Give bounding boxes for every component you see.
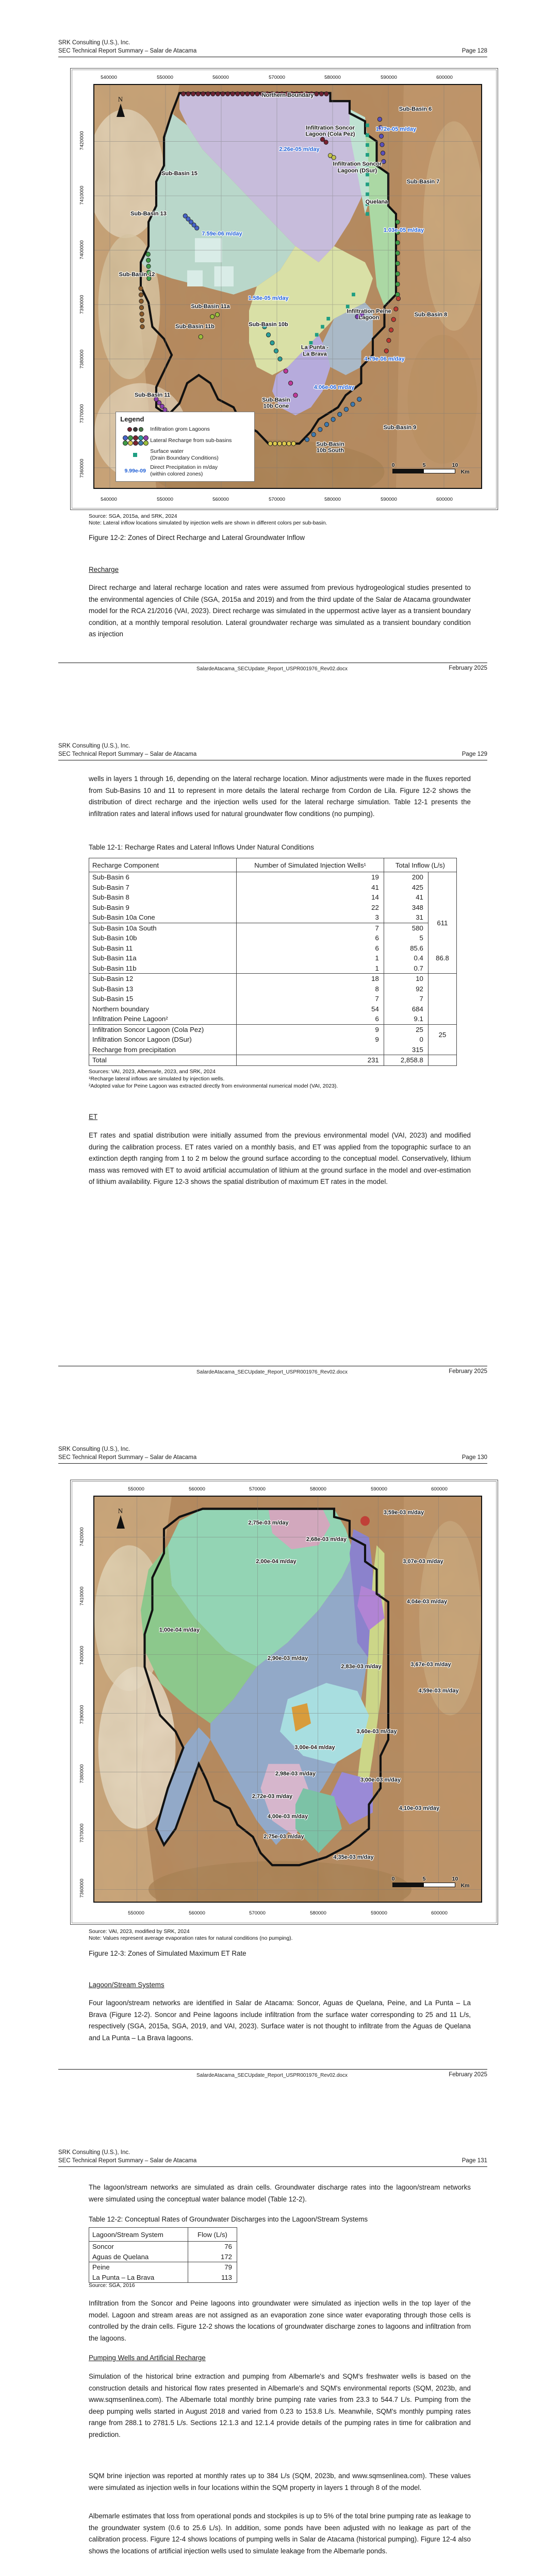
- header-company: SRK Consulting (U.S.), Inc.: [58, 743, 130, 749]
- label-rate-272e03: 2,72e-03 m/day: [252, 1793, 292, 1800]
- map-legend: Legend Infiltration grom Lagoons Lateral…: [116, 412, 255, 482]
- table-footnote-2: ²Adopted value for Peine Lagoon was extr…: [89, 1083, 481, 1089]
- table-cell: 76: [188, 2242, 237, 2252]
- label-sub-basin-10b: Sub-Basin 10b: [249, 321, 288, 328]
- table-body: Soncor76Aguas de Quelana172Peine79La Pun…: [89, 2242, 237, 2283]
- column-header: Recharge Component: [89, 858, 237, 872]
- table-cell: Sub-Basin 11a: [89, 953, 237, 963]
- table-cell: 0: [384, 1035, 428, 1045]
- scale-tick: 5: [423, 1876, 426, 1882]
- table-cell: 684: [384, 1004, 428, 1014]
- axis-tick: 550000: [128, 1486, 144, 1492]
- table-cell: Soncor: [89, 2242, 188, 2252]
- table-row: Sub-Basin 1577: [89, 994, 457, 1004]
- legend-item-precipitation: 9.99e-09 Direct Precipitation in m/day (…: [120, 464, 250, 477]
- label-infiltration-peine-lagoon: Infiltration Peine Lagoon: [347, 308, 391, 321]
- footer-rule: [58, 1366, 487, 1366]
- legend-item-surface-water: Surface water (Drain Boundary Conditions…: [120, 448, 250, 461]
- paragraph: ET rates and spatial distribution were i…: [89, 1130, 471, 1188]
- footer-filename: SalardeAtacama_SECUpdate_Report_USPR0019…: [129, 2073, 415, 2078]
- table-row: La Punta – La Brava113: [89, 2273, 237, 2283]
- axis-tick: 7420000: [79, 131, 85, 150]
- label-sub-basin-10b-cone: Sub-Basin 10b Cone: [262, 397, 290, 410]
- label-rate-200e04: 2,00e-04 m/day: [256, 1558, 296, 1565]
- table-row: Infiltration Soncor Lagoon (DSur)90: [89, 1035, 457, 1045]
- table-row: Aguas de Quelana172: [89, 2252, 237, 2262]
- table-cell: 31: [384, 912, 428, 923]
- axis-tick: 7420000: [79, 1528, 85, 1547]
- table-cell: Sub-Basin 10a South: [89, 923, 237, 933]
- axis-tick: 550000: [128, 1910, 144, 1916]
- page-number: Page 131: [462, 2158, 487, 2164]
- table-cell: Sub-Basin 12: [89, 974, 237, 984]
- figure-12-3: 550000 560000 570000 580000 590000 60000…: [70, 1480, 498, 1925]
- paragraph: The lagoon/stream networks are simulated…: [89, 2182, 471, 2205]
- table-cell: 41: [384, 892, 428, 903]
- table-row: Sub-Basin 741425: [89, 883, 457, 893]
- group-inflow-blank-2: [428, 933, 456, 943]
- table-row: Sub-Basin 10a Cone331611: [89, 912, 457, 923]
- legend-item-lateral-recharge: Lateral Recharge from sub-basins: [120, 435, 250, 445]
- figure-caption: Figure 12-3: Zones of Simulated Maximum …: [89, 1950, 481, 1957]
- table-cell: Sub-Basin 10a Cone: [89, 912, 237, 923]
- label-infiltration-soncor-cola-pez: Infiltration Soncor Lagoon (Cola Pez): [306, 125, 355, 138]
- label-rate-406e06: 4.06e-06 m/day: [314, 384, 354, 391]
- table-cell: 3: [237, 912, 384, 923]
- legend-item-lagoons: Infiltration grom Lagoons: [120, 426, 250, 433]
- figure-note: Note: Values represent average evaporati…: [89, 1936, 481, 1941]
- paragraph: Albemarle estimates that loss from opera…: [89, 2511, 471, 2557]
- table-cell: 10: [384, 974, 428, 984]
- table-cell: 7: [237, 994, 384, 1004]
- map2-labels: 3,59e-03 m/day2,75e-03 m/day2,68e-03 m/d…: [94, 1497, 481, 1902]
- table-lagoon-discharges: Lagoon/Stream System Flow (L/s) Soncor76…: [89, 2227, 237, 2283]
- header-rule: [58, 2166, 487, 2167]
- table-cell: 6: [237, 943, 384, 954]
- label-rate-360e03: 3,60e-03 m/day: [356, 1728, 397, 1735]
- scale-tick: 0: [392, 462, 395, 468]
- table-cell: Sub-Basin 15: [89, 994, 237, 1004]
- table-source: Source: SGA, 2016: [89, 2283, 481, 2289]
- table-cell: 14: [237, 892, 384, 903]
- label-rate-410e03: 4,10e-03 m/day: [399, 1805, 439, 1812]
- header-title: SEC Technical Report Summary – Salar de …: [58, 48, 196, 54]
- legend-label: Surface water (Drain Boundary Conditions…: [150, 448, 218, 461]
- column-header: Total Inflow (L/s): [384, 858, 456, 872]
- group-inflow-611: 611: [428, 912, 456, 933]
- table-cell: Sub-Basin 9: [89, 903, 237, 913]
- page-129: SRK Consulting (U.S.), Inc. SEC Technica…: [0, 703, 544, 1406]
- label-sub-basin-6: Sub-Basin 6: [399, 106, 432, 113]
- table-cell: 6: [237, 1014, 384, 1024]
- axis-tick: 7410000: [79, 1587, 85, 1606]
- table-cell: 25: [384, 1024, 428, 1035]
- table-cell: Infiltration Soncor Lagoon (Cola Pez): [89, 1024, 237, 1035]
- axis-tick: 580000: [310, 1486, 326, 1492]
- table-row: Sub-Basin 619200: [89, 872, 457, 883]
- table-cell: La Punta – La Brava: [89, 2273, 188, 2283]
- label-rate-158e05: 1.58e-05 m/day: [248, 295, 288, 302]
- table-row: Sub-Basin 81441: [89, 892, 457, 903]
- table-row: Soncor76: [89, 2242, 237, 2252]
- table-row: Sub-Basin 13892: [89, 984, 457, 994]
- legend-label: Lateral Recharge from sub-basins: [150, 437, 232, 444]
- label-rate-268e03: 2,68e-03 m/day: [306, 1536, 347, 1543]
- north-arrow-icon: N: [114, 1507, 127, 1529]
- table-cell: 19: [237, 872, 384, 883]
- label-la-punta-la-brava: La Punta - La Brava: [301, 345, 328, 358]
- axis-tick: 540000: [101, 497, 117, 502]
- table-cell: 231: [237, 1055, 384, 1066]
- table-cell: 172: [188, 2252, 237, 2262]
- table-cell: Sub-Basin 7: [89, 883, 237, 893]
- label-sub-basin-8: Sub-Basin 8: [415, 311, 448, 318]
- column-header: Flow (L/s): [188, 2228, 237, 2242]
- header-title: SEC Technical Report Summary – Salar de …: [58, 2158, 196, 2164]
- label-rate-367e03: 3,67e-03 m/day: [410, 1662, 451, 1668]
- figure-12-2: 540000 550000 560000 570000 580000 59000…: [70, 68, 498, 510]
- table-footnote-1: ¹Recharge lateral inflows are simulated …: [89, 1076, 481, 1082]
- table-cell: Total: [89, 1055, 237, 1066]
- table-cell: 1: [237, 963, 384, 974]
- axis-tick: 600000: [436, 75, 453, 80]
- footer-rule: [58, 2069, 487, 2070]
- table-cell: 113: [188, 2273, 237, 2283]
- table-cell: 6: [237, 933, 384, 943]
- label-rate-307e03: 3,07e-03 m/day: [403, 1558, 443, 1565]
- label-rate-298e03: 2,98e-03 m/day: [275, 1771, 316, 1777]
- section-heading-lagoon-stream: Lagoon/Stream Systems: [89, 1981, 164, 1989]
- table-cell: 348: [384, 903, 428, 913]
- table-cell: Sub-Basin 10b: [89, 933, 237, 943]
- map-recharge-zones: Northern BoundarySub-Basin 6Infiltration…: [93, 84, 482, 489]
- table-row: Sub-Basin 11a10.4: [89, 953, 457, 963]
- label-sub-basin-11b: Sub-Basin 11b: [175, 324, 215, 330]
- paragraph: SQM brine injection was reported at mont…: [89, 2470, 471, 2494]
- table-row: Sub-Basin 11685.686.8: [89, 943, 457, 954]
- axis-tick: 570000: [269, 497, 285, 502]
- label-rate-404e03: 4,04e-03 m/day: [407, 1599, 447, 1605]
- header-company: SRK Consulting (U.S.), Inc.: [58, 1446, 130, 1452]
- map-et-zones: 3,59e-03 m/day2,75e-03 m/day2,68e-03 m/d…: [93, 1496, 482, 1903]
- axis-tick: 560000: [212, 75, 229, 80]
- label-rate-275e03-south: 2,75e-03 m/day: [263, 1834, 304, 1840]
- section-heading-recharge: Recharge: [89, 566, 119, 573]
- group-inflow-blank-1: [428, 872, 456, 913]
- section-heading-et: ET: [89, 1113, 97, 1121]
- column-header: Number of Simulated Injection Wells¹: [237, 858, 384, 872]
- axis-tick: 7380000: [79, 1765, 85, 1784]
- paragraph: Direct recharge and lateral recharge loc…: [89, 582, 471, 640]
- north-letter: N: [114, 1507, 127, 1515]
- legend-label: Infiltration grom Lagoons: [150, 426, 210, 433]
- axis-tick: 7380000: [79, 350, 85, 369]
- table-row: Sub-Basin 10b65: [89, 933, 457, 943]
- label-rate-226e05: 2.26e-05 m/day: [279, 146, 319, 153]
- north-letter: N: [114, 95, 127, 104]
- paragraph: Infiltration from the Soncor and Peine l…: [89, 2298, 471, 2344]
- figure-note: Note: Lateral inflow locations simulated…: [89, 520, 481, 526]
- section-heading-pumping: Pumping Wells and Artificial Recharge: [89, 2354, 206, 2362]
- label-rate-300e04: 3,00e-04 m/day: [294, 1744, 335, 1751]
- precipitation-value: 9.99e-09: [120, 468, 150, 474]
- axis-tick: 600000: [436, 497, 453, 502]
- label-northern-boundary: Northern Boundary: [262, 92, 314, 98]
- axis-tick: 560000: [189, 1486, 205, 1492]
- label-rate-479e06: 4.79e-06 m/day: [364, 356, 404, 363]
- scale-tick: 5: [423, 462, 426, 468]
- header-company: SRK Consulting (U.S.), Inc.: [58, 2149, 130, 2156]
- page-number: Page 129: [462, 751, 487, 757]
- label-sub-basin-7: Sub-Basin 7: [407, 178, 440, 185]
- paragraph: Simulation of the historical brine extra…: [89, 2371, 471, 2441]
- axis-tick: 560000: [189, 1910, 205, 1916]
- label-rate-400e03: 4,00e-03 m/day: [268, 1814, 308, 1820]
- table-cell: Sub-Basin 8: [89, 892, 237, 903]
- table-cell: [237, 1045, 384, 1055]
- page-130: SRK Consulting (U.S.), Inc. SEC Technica…: [0, 1406, 544, 2110]
- axis-tick: 590000: [371, 1486, 387, 1492]
- column-header: Lagoon/Stream System: [89, 2228, 188, 2242]
- group-inflow-blank-4: [428, 1045, 456, 1055]
- recharge-dots-icon: [120, 435, 150, 445]
- group-inflow-25: 25: [428, 1024, 456, 1045]
- axis-tick: 590000: [381, 497, 397, 502]
- table-row: Recharge from precipitation315: [89, 1045, 457, 1055]
- label-sub-basin-12: Sub-Basin 12: [119, 271, 155, 278]
- table-cell: 1: [237, 953, 384, 963]
- table-cell: 0.4: [384, 953, 428, 963]
- figure-source: Source: SGA, 2015a, and SRK, 2024: [89, 514, 481, 519]
- table-row: Sub-Basin 11b10.7: [89, 963, 457, 974]
- axis-tick: 7370000: [79, 1824, 85, 1843]
- table-cell: 9: [237, 1035, 384, 1045]
- label-rate-103e05: 1.03e-05 m/day: [384, 227, 424, 233]
- scale-unit: Km: [461, 469, 470, 475]
- table-cell: Sub-Basin 6: [89, 872, 237, 883]
- table-caption: Table 12-2: Conceptual Rates of Groundwa…: [89, 2215, 481, 2223]
- table-cell: Northern boundary: [89, 1004, 237, 1014]
- north-arrow-icon: N: [114, 95, 127, 117]
- table-cell: 22: [237, 903, 384, 913]
- axis-tick: 540000: [101, 75, 117, 80]
- table-row: Infiltration Soncor Lagoon (Cola Pez)925…: [89, 1024, 457, 1035]
- scale-bar: 0 5 10 Km: [392, 462, 470, 478]
- table-cell: 41: [237, 883, 384, 893]
- header-title: SEC Technical Report Summary – Salar de …: [58, 751, 196, 757]
- table-cell: 18: [237, 974, 384, 984]
- label-rate-100e04: 1,00e-04 m/day: [159, 1627, 200, 1634]
- label-rate-759e06: 7.59e-06 m/day: [202, 231, 242, 238]
- axis-tick: 570000: [249, 1910, 266, 1916]
- label-rate-359e03: 3,59e-03 m/day: [384, 1510, 424, 1516]
- table-row: Sub-Basin 922348: [89, 903, 457, 913]
- axis-tick: 600000: [431, 1486, 448, 1492]
- table-row: Sub-Basin 10a South7580: [89, 923, 457, 933]
- axis-tick: 7390000: [79, 1705, 85, 1724]
- axis-tick: 7400000: [79, 241, 85, 260]
- label-rate-300e03: 3,00e-03 m/day: [360, 1777, 401, 1784]
- axis-tick: 570000: [249, 1486, 266, 1492]
- table-cell: 200: [384, 872, 428, 883]
- group-inflow-blank-5: [428, 1055, 456, 1066]
- label-sub-basin-15: Sub-Basin 15: [161, 171, 197, 177]
- label-quelana: Quelana: [366, 199, 388, 206]
- scale-tick: 10: [452, 1876, 458, 1882]
- table-cell: 9: [237, 1024, 384, 1035]
- group-inflow-86-8: 86.8: [428, 943, 456, 974]
- label-sub-basin-13: Sub-Basin 13: [130, 211, 167, 217]
- table-row: Northern boundary54684: [89, 1004, 457, 1014]
- axis-tick: 550000: [157, 497, 173, 502]
- page-131: SRK Consulting (U.S.), Inc. SEC Technica…: [0, 2110, 544, 2576]
- table-cell: 5: [384, 933, 428, 943]
- scale-unit: Km: [461, 1883, 470, 1889]
- axis-tick: 7370000: [79, 404, 85, 423]
- label-sub-basin-9: Sub-Basin 9: [384, 424, 417, 431]
- axis-tick: 580000: [324, 497, 341, 502]
- header-title: SEC Technical Report Summary – Salar de …: [58, 1454, 196, 1461]
- table-sources: Sources: VAI, 2023, Albemarle, 2023, and…: [89, 1069, 481, 1075]
- table-cell: 79: [188, 2262, 237, 2273]
- header-rule: [58, 57, 487, 57]
- label-rate-283e03: 2,83e-03 m/day: [341, 1664, 381, 1670]
- axis-tick: 590000: [381, 75, 397, 80]
- axis-tick: 570000: [269, 75, 285, 80]
- table-cell: 315: [384, 1045, 428, 1055]
- table-cell: Infiltration Peine Lagoon²: [89, 1014, 237, 1024]
- header-rule: [58, 1463, 487, 1464]
- table-cell: 54: [237, 1004, 384, 1014]
- axis-tick: 7390000: [79, 295, 85, 314]
- table-cell: Sub-Basin 11b: [89, 963, 237, 974]
- figure-source: Source: VAI, 2023, modified by SRK, 2024: [89, 1929, 481, 1935]
- label-sub-basin-11: Sub-Basin 11: [135, 392, 170, 399]
- axis-tick: 590000: [371, 1910, 387, 1916]
- label-rate-172e05: 1.72e-05 m/day: [376, 126, 416, 133]
- table-cell: 580: [384, 923, 428, 933]
- table-cell: 0.7: [384, 963, 428, 974]
- table-cell: Recharge from precipitation: [89, 1045, 237, 1055]
- axis-tick: 7360000: [79, 1879, 85, 1898]
- scale-tick: 0: [392, 1876, 395, 1882]
- table-cell: 2,858.8: [384, 1055, 428, 1066]
- footer-rule: [58, 663, 487, 663]
- page-number: Page 130: [462, 1454, 487, 1461]
- axis-tick: 600000: [431, 1910, 448, 1916]
- label-sub-basin-10b-south: Sub-Basin 10b South: [316, 441, 344, 454]
- footer-filename: SalardeAtacama_SECUpdate_Report_USPR0019…: [129, 666, 415, 672]
- footer-date: February 2025: [449, 1368, 487, 1375]
- legend-title: Legend: [120, 415, 250, 423]
- label-infiltration-soncor-dsur: Infiltration Soncor Lagoon (DSur): [333, 161, 382, 174]
- axis-tick: 7410000: [79, 186, 85, 205]
- table-cell: 425: [384, 883, 428, 893]
- table-row: Sub-Basin 121810: [89, 974, 457, 984]
- axis-tick: 7400000: [79, 1646, 85, 1665]
- legend-label: Direct Precipitation in m/day (within co…: [150, 464, 218, 477]
- axis-tick: 7360000: [79, 459, 85, 478]
- label-rate-275e03-north: 2,75e-03 m/day: [248, 1520, 288, 1527]
- page-128: SRK Consulting (U.S.), Inc. SEC Technica…: [0, 0, 544, 703]
- table-body: Sub-Basin 619200Sub-Basin 741425Sub-Basi…: [89, 872, 457, 1066]
- header-rule: [58, 760, 487, 760]
- label-rate-459e03: 4,59e-03 m/day: [418, 1688, 458, 1694]
- table-recharge-rates: Recharge Component Number of Simulated I…: [89, 858, 457, 1066]
- table-cell: 85.6: [384, 943, 428, 954]
- scale-tick: 10: [452, 462, 458, 468]
- table-cell: 9.1: [384, 1014, 428, 1024]
- axis-tick: 580000: [310, 1910, 326, 1916]
- table-cell: Infiltration Soncor Lagoon (DSur): [89, 1035, 237, 1045]
- header-company: SRK Consulting (U.S.), Inc.: [58, 40, 130, 46]
- axis-tick: 560000: [212, 497, 229, 502]
- axis-tick: 550000: [157, 75, 173, 80]
- table-cell: 92: [384, 984, 428, 994]
- table-cell: Aguas de Quelana: [89, 2252, 188, 2262]
- table-cell: Peine: [89, 2262, 188, 2273]
- table-cell: 7: [237, 923, 384, 933]
- table-cell: Sub-Basin 13: [89, 984, 237, 994]
- table-row: Total2312,858.8: [89, 1055, 457, 1066]
- label-sub-basin-11a: Sub-Basin 11a: [191, 303, 229, 310]
- label-rate-435e03: 4,35e-03 m/day: [333, 1854, 373, 1860]
- table-cell: 8: [237, 984, 384, 994]
- lagoon-dots-icon: [120, 427, 150, 432]
- table-cell: Sub-Basin 11: [89, 943, 237, 954]
- page-number: Page 128: [462, 48, 487, 54]
- figure-caption: Figure 12-2: Zones of Direct Recharge an…: [89, 534, 481, 541]
- table-cell: 7: [384, 994, 428, 1004]
- footer-date: February 2025: [449, 665, 487, 671]
- footer-filename: SalardeAtacama_SECUpdate_Report_USPR0019…: [129, 1369, 415, 1375]
- paragraph: Four lagoon/stream networks are identifi…: [89, 1997, 471, 2044]
- group-inflow-blank-3: [428, 974, 456, 1025]
- label-rate-290e03: 2,90e-03 m/day: [268, 1655, 308, 1662]
- footer-date: February 2025: [449, 2072, 487, 2078]
- drain-square-icon: [120, 453, 150, 457]
- axis-tick: 580000: [324, 75, 341, 80]
- scale-bar: 0 5 10 Km: [392, 1876, 470, 1891]
- table-row: Peine79: [89, 2262, 237, 2273]
- table-row: Infiltration Peine Lagoon²69.1: [89, 1014, 457, 1024]
- paragraph: wells in layers 1 through 16, depending …: [89, 773, 471, 820]
- table-caption: Table 12-1: Recharge Rates and Lateral I…: [89, 843, 481, 851]
